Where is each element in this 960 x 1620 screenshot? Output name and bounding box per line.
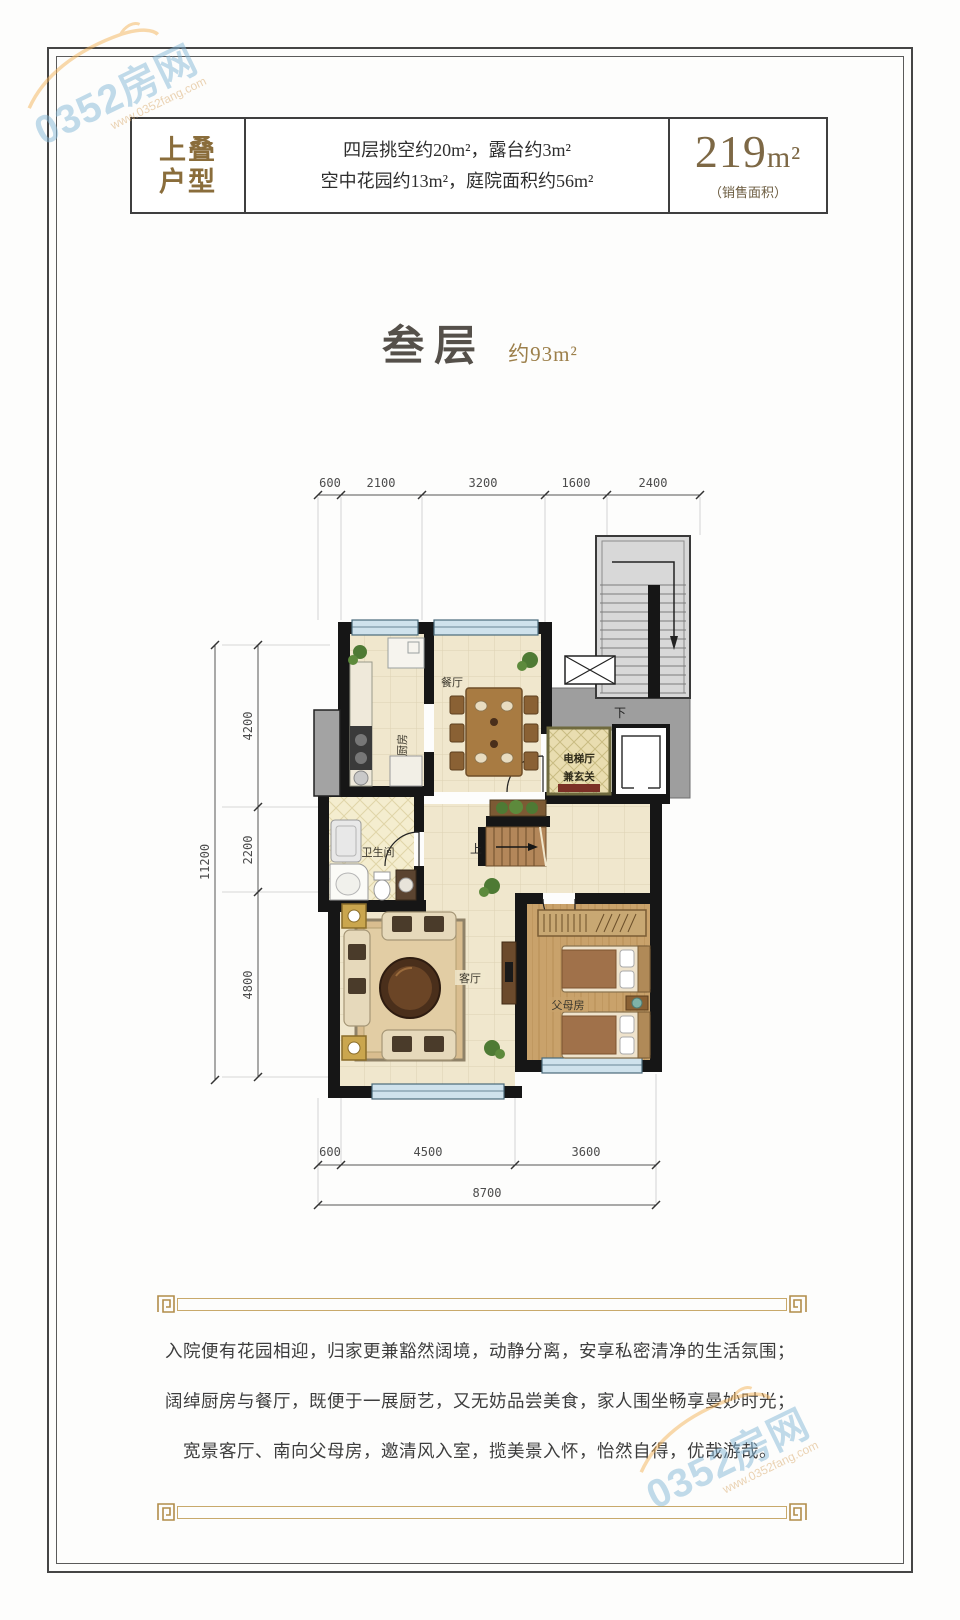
- dim-bottom-2: 4500: [414, 1145, 443, 1159]
- sale-area-cell: 219m² （销售面积）: [668, 119, 826, 212]
- label-living: 客厅: [459, 971, 481, 985]
- description-line3: 宽景客厅、南向父母房，邀清风入室，揽美景入怀，怡然自得，优哉游哉。: [130, 1426, 830, 1476]
- dim-bottom-1: 600: [319, 1145, 341, 1159]
- dims-left: 11200 4200 2200 4800: [198, 641, 262, 1084]
- unit-type-line1: 上叠: [159, 134, 217, 166]
- interior-stairs: [486, 800, 546, 866]
- label-elevator-hall-2: 兼玄关: [563, 770, 595, 783]
- header-box: 上叠 户型 四层挑空约20m²，露台约3m² 空中花园约13m²，庭院面积约56…: [130, 117, 828, 214]
- dim-bottom-3: 3600: [572, 1145, 601, 1159]
- ornament-frame-top: [156, 1294, 808, 1314]
- label-stairs-up: 上: [470, 842, 482, 856]
- dim-left-3: 4800: [241, 971, 255, 1000]
- description-line1: 入院便有花园相迎，归家更兼豁然阔境，动静分离，安享私密清净的生活氛围；: [130, 1326, 830, 1376]
- floor-plan-svg: 600 2100 3200 1600 2400 11200 4200 2200 …: [190, 455, 710, 1215]
- dim-top-1: 600: [319, 476, 341, 490]
- dim-left-2: 2200: [241, 836, 255, 865]
- dim-top-3: 3200: [469, 476, 498, 490]
- unit-type-line2: 户型: [159, 166, 217, 198]
- label-dining: 餐厅: [441, 675, 463, 689]
- dim-left-total: 11200: [198, 844, 212, 880]
- unit-type-tag: 上叠 户型: [132, 119, 246, 212]
- description-line2: 阔绰厨房与餐厅，既便于一展厨艺，又无妨品尝美食，家人围坐畅享曼妙时光；: [130, 1376, 830, 1426]
- header-desc-line2: 空中花园约13m²，庭院面积约56m²: [321, 166, 594, 197]
- dims-top: 600 2100 3200 1600 2400: [314, 476, 704, 499]
- floor-area: 约93m²: [508, 338, 578, 373]
- label-kitchen: 厨房: [396, 734, 409, 756]
- dims-bottom: 600 4500 3600 8700: [314, 1145, 660, 1209]
- duct-shaft: [314, 710, 340, 796]
- floor-title-row: 叁层 约93m²: [0, 312, 960, 373]
- header-desc-line1: 四层挑空约20m²，露台约3m²: [343, 135, 571, 166]
- greek-key-icon: [156, 1502, 176, 1522]
- floor-plan: 600 2100 3200 1600 2400 11200 4200 2200 …: [190, 455, 710, 1215]
- dim-top-4: 1600: [562, 476, 591, 490]
- label-bathroom: 卫生间: [362, 845, 395, 859]
- description-block: 入院便有花园相迎，归家更兼豁然阔境，动静分离，安享私密清净的生活氛围； 阔绰厨房…: [130, 1326, 830, 1476]
- dim-top-5: 2400: [639, 476, 668, 490]
- elevator-shaft: [614, 726, 668, 796]
- ornament-line: [177, 1506, 787, 1519]
- ornament-line: [177, 1298, 787, 1311]
- sale-area-note: （销售面积）: [709, 182, 787, 201]
- label-stairs-down: 下: [614, 706, 626, 720]
- ornament-frame-bottom: [156, 1502, 808, 1522]
- greek-key-icon: [156, 1294, 176, 1314]
- floor-title: 叁层: [382, 312, 486, 373]
- dim-top-2: 2100: [367, 476, 396, 490]
- watermark-swoosh-icon: [10, 0, 207, 114]
- sale-area-value: 219m²: [695, 130, 801, 180]
- greek-key-icon: [788, 1502, 808, 1522]
- header-description: 四层挑空约20m²，露台约3m² 空中花园约13m²，庭院面积约56m²: [246, 119, 668, 212]
- label-elevator-hall-1: 电梯厅: [563, 752, 595, 765]
- void-box: [565, 656, 615, 684]
- dim-bottom-total: 8700: [473, 1186, 502, 1200]
- dim-left-1: 4200: [241, 712, 255, 741]
- label-parents: 父母房: [552, 999, 585, 1012]
- greek-key-icon: [788, 1294, 808, 1314]
